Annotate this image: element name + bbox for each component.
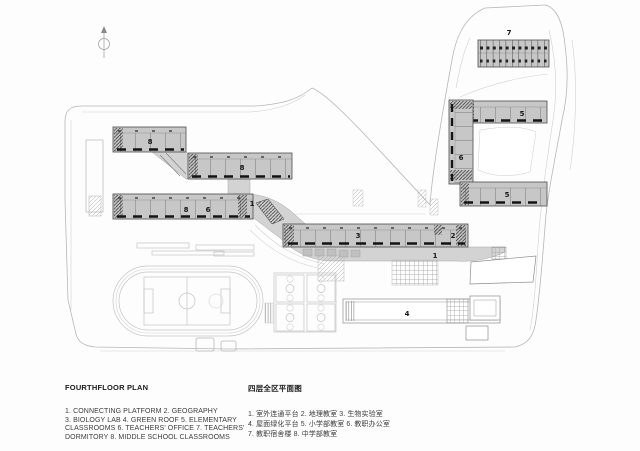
legend-line: 1. 室外连通平台 2. 地理教室 3. 生物实验室	[248, 410, 428, 420]
stair-core-north	[450, 101, 472, 109]
platform-link-b-c	[228, 179, 250, 195]
label-biology: 3	[356, 232, 361, 240]
court	[307, 304, 335, 331]
legend-title-zh: 四层全区平面图	[248, 383, 428, 394]
legend-line: 4. 屋面绿化平台 5. 小学部教室 6. 教职办公室	[248, 420, 428, 430]
louver-strip-b	[418, 190, 426, 207]
label-u-bottom: 5	[505, 191, 510, 199]
elementary-u-block	[449, 100, 547, 206]
stair-core-west	[284, 225, 294, 246]
walkway-below-dorm	[460, 74, 548, 97]
label-dormitory: 7	[507, 29, 512, 37]
label-u-left: 6	[459, 154, 464, 162]
legend-line: DORMITORY 8. MIDDLE SCHOOL CLASSROOMS	[65, 434, 265, 443]
stair-core	[189, 154, 198, 178]
annex-block-a	[470, 296, 500, 320]
legend-line: CLASSROOMS 6. TEACHERS' OFFICE 7. TEACHE…	[65, 425, 265, 434]
stair-core-east	[456, 225, 466, 246]
floor-plan-drawing: 8 8 8 6 1 3 2 1 4 5 6 5 7	[0, 0, 640, 378]
terrace-grid-east	[392, 260, 438, 285]
legend-lines-en: 1. CONNECTING PLATFORM 2. GEOGRAPHY 3. B…	[65, 408, 265, 442]
stair-core	[114, 128, 123, 151]
north-arrow-icon	[99, 26, 110, 58]
basketball-courts	[265, 273, 336, 332]
wc-core	[434, 225, 442, 235]
label-green-roof: 4	[405, 310, 410, 318]
west-louver-hatch	[345, 301, 356, 321]
label-geography: 2	[451, 232, 456, 240]
left-stair-hatch	[89, 196, 101, 216]
site-inner-road	[530, 30, 556, 330]
legend-chinese: 四层全区平面图 1. 室外连通平台 2. 地理教室 3. 生物实验室 4. 屋面…	[248, 383, 428, 440]
legend-line: 3. BIOLOGY LAB 4. GREEN ROOF 5. ELEMENTA…	[65, 417, 265, 426]
teachers-dormitory	[478, 40, 549, 67]
running-track	[113, 266, 263, 336]
stair-core-west	[114, 195, 123, 218]
unit-partitions	[478, 40, 549, 67]
slanted-hall	[470, 256, 536, 284]
stair-core-east	[238, 195, 247, 218]
label-platform-upper: 1	[250, 200, 255, 208]
label-bar-a: 8	[148, 138, 153, 146]
legend-title-en: FOURTHFLOOR PLAN	[65, 383, 265, 392]
louver-strip-c	[430, 199, 438, 215]
soccer-field	[144, 277, 230, 325]
label-bar-c-8: 8	[184, 206, 189, 214]
label-bar-b: 8	[240, 164, 245, 172]
walkway-upper	[456, 38, 470, 88]
annex-block-b	[466, 326, 488, 340]
legend-line: 1. CONNECTING PLATFORM 2. GEOGRAPHY	[65, 408, 265, 417]
court	[276, 275, 304, 302]
site-inner-line-top	[82, 95, 305, 112]
platform-stair-east	[492, 247, 506, 259]
label-platform-lower: 1	[433, 252, 438, 260]
site-entry-step-b	[221, 341, 236, 351]
stair-grid	[447, 299, 468, 323]
stair-core-south	[450, 170, 472, 180]
terrace-hatch-west	[318, 255, 344, 281]
louver-strip-a	[353, 190, 363, 206]
label-u-top: 5	[520, 110, 525, 118]
legend-lines-zh: 1. 室外连通平台 2. 地理教室 3. 生物实验室 4. 屋面绿化平台 5. …	[248, 410, 428, 440]
stair-core	[461, 183, 469, 205]
lab-bar-biology-geography	[283, 224, 468, 247]
u-courtyard	[478, 127, 536, 175]
legend-english: FOURTHFLOOR PLAN 1. CONNECTING PLATFORM …	[65, 383, 265, 442]
southeast-buildings	[466, 256, 536, 340]
court	[276, 304, 304, 331]
floor-plan-page: 8 8 8 6 1 3 2 1 4 5 6 5 7 FOURTHFLOOR PL…	[0, 0, 640, 451]
court-stair	[265, 303, 273, 323]
label-bar-c-6: 6	[206, 206, 211, 214]
legend-line: 7. 教职宿舍楼 8. 中学部教室	[248, 430, 428, 440]
site-outer-right-line	[570, 40, 576, 170]
